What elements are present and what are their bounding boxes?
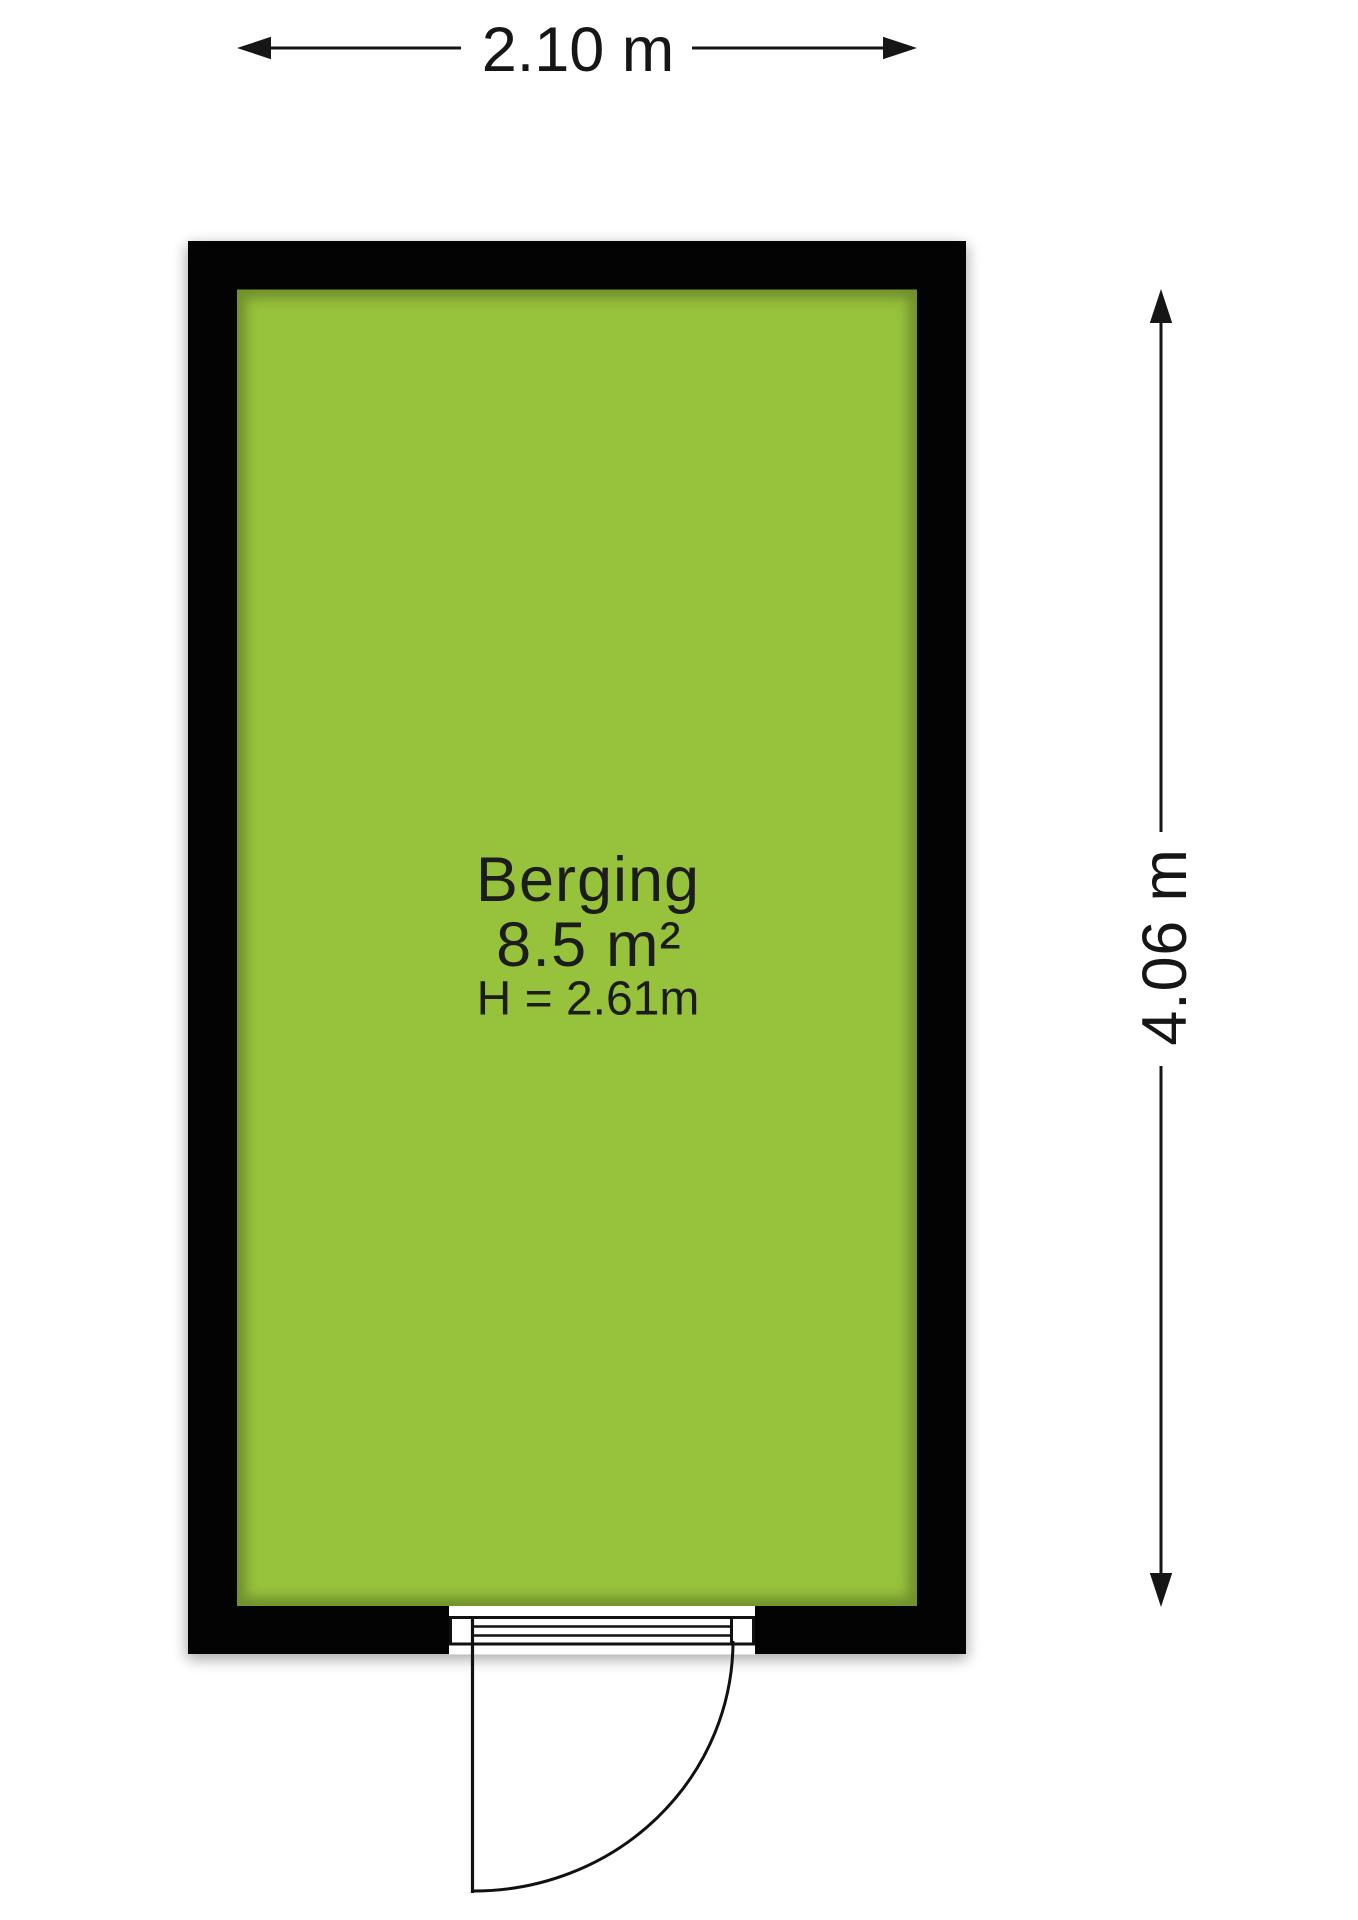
svg-text:2.10 m: 2.10 m xyxy=(482,15,675,85)
svg-text:H = 2.61m: H = 2.61m xyxy=(477,973,700,1026)
svg-text:4.06 m: 4.06 m xyxy=(1130,848,1200,1045)
svg-text:8.5 m²: 8.5 m² xyxy=(496,910,682,980)
svg-text:Berging: Berging xyxy=(476,845,700,915)
